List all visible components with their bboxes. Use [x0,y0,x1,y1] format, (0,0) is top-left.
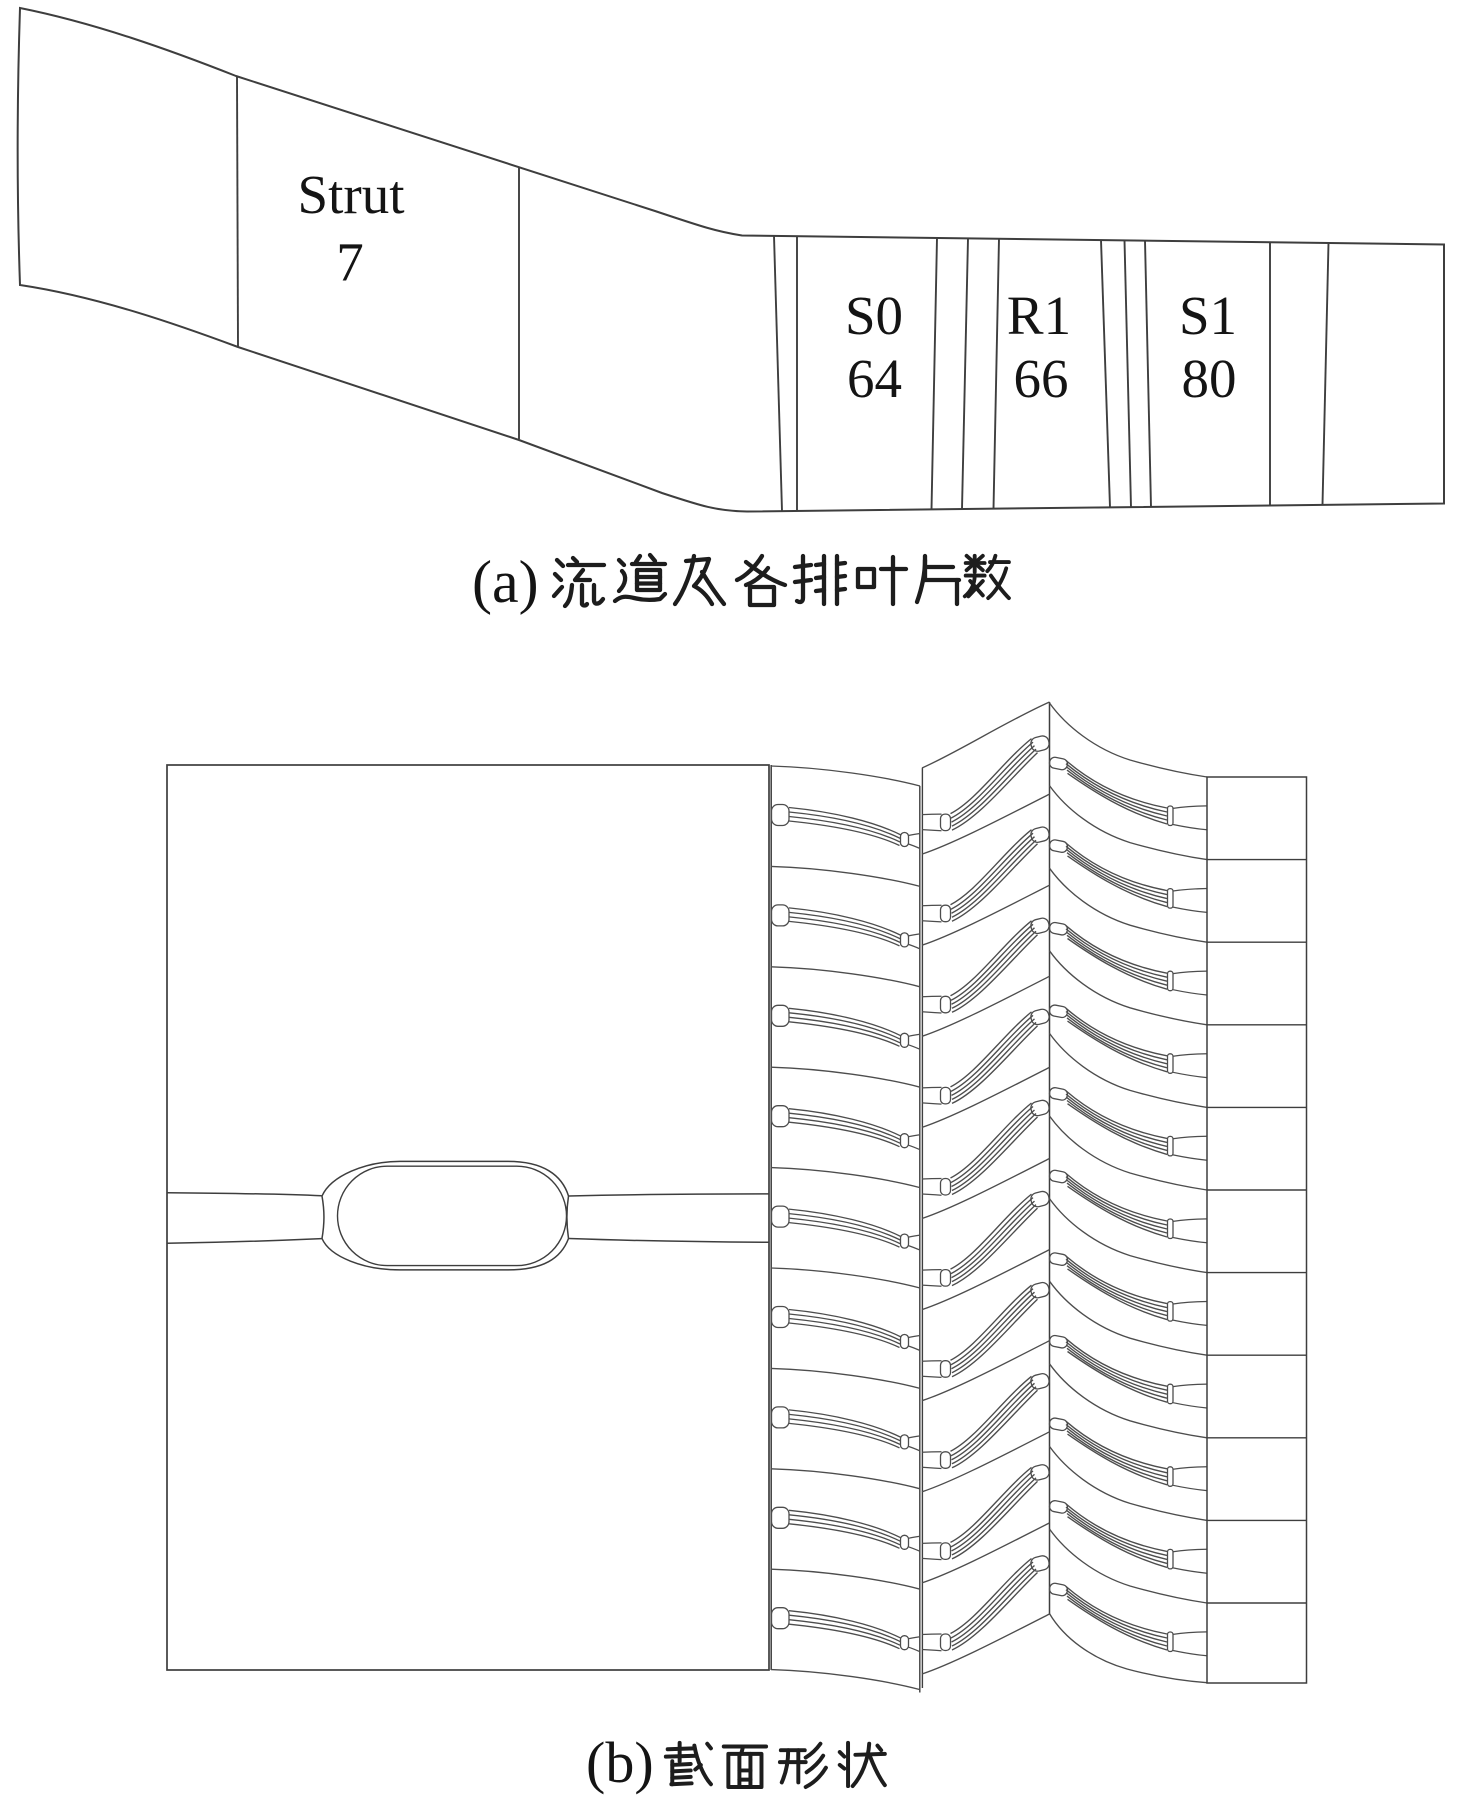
svg-text:Strut: Strut [298,164,405,225]
svg-text:(b): (b) [586,1730,654,1795]
svg-text:64: 64 [847,348,902,409]
svg-text:80: 80 [1182,348,1237,409]
svg-text:R1: R1 [1007,285,1071,346]
svg-text:S1: S1 [1179,285,1237,346]
svg-text:S0: S0 [845,285,903,346]
svg-text:7: 7 [336,232,364,293]
svg-text:(a): (a) [472,549,539,615]
svg-text:66: 66 [1014,348,1069,409]
